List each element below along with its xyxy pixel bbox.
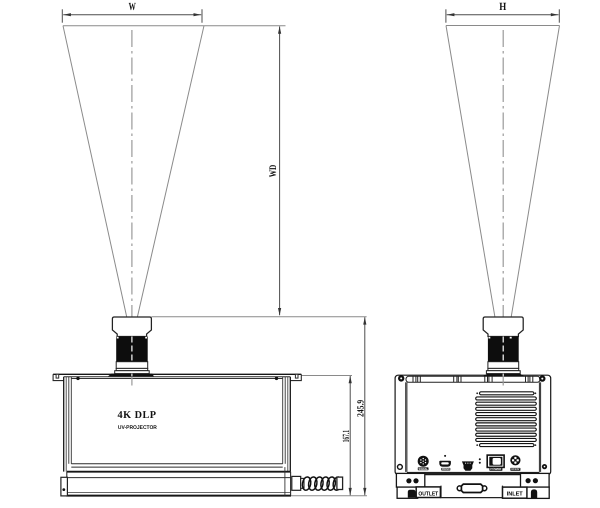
svg-text:OUTLET: OUTLET bbox=[418, 491, 438, 498]
svg-text:167.1: 167.1 bbox=[342, 430, 352, 443]
svg-text:SIGNAL: SIGNAL bbox=[418, 467, 428, 471]
svg-text:HDMI: HDMI bbox=[442, 467, 450, 471]
svg-text:UV-PROJECTOR: UV-PROJECTOR bbox=[118, 425, 157, 431]
svg-text:DC24V: DC24V bbox=[511, 467, 519, 471]
svg-text:POWER: POWER bbox=[490, 467, 502, 471]
svg-text:245.9: 245.9 bbox=[356, 400, 366, 417]
svg-text:WD: WD bbox=[268, 165, 279, 178]
svg-text:W: W bbox=[129, 1, 136, 13]
svg-text:4K DLP: 4K DLP bbox=[118, 410, 157, 421]
svg-text:INLET: INLET bbox=[507, 492, 523, 498]
svg-text:H: H bbox=[499, 1, 506, 13]
